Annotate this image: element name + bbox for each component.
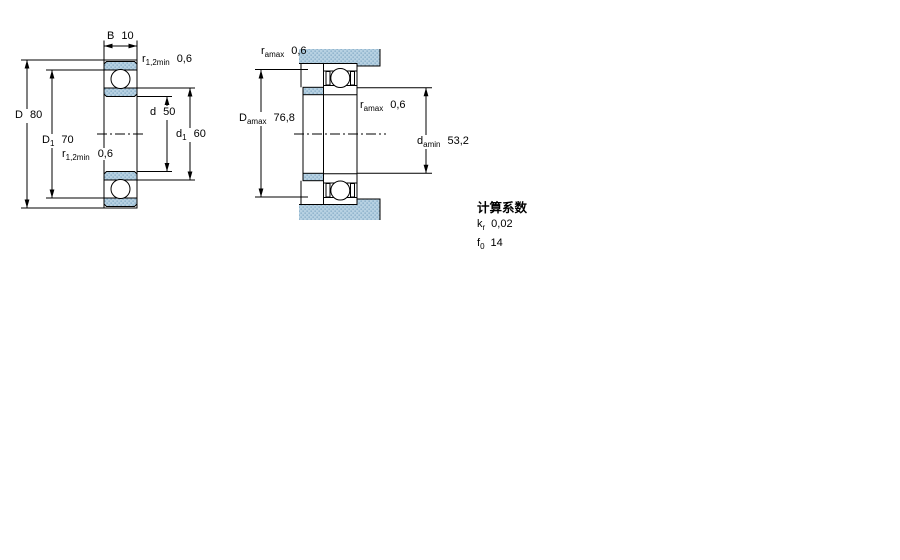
factor-kr: kr0,02 — [477, 218, 513, 232]
cage-pocket — [351, 72, 355, 86]
dim-label-ramax-top: ramax0,6 — [261, 45, 307, 59]
left-ball-top — [111, 70, 130, 89]
dim-label-D1: D170 — [41, 134, 75, 148]
dim-label-ramax-mid: ramax0,6 — [359, 99, 407, 113]
shaft-shoulder-bottom-section — [303, 173, 324, 180]
right-mounted-diagram — [255, 49, 432, 220]
left-inner-ring-bottom-section — [104, 172, 137, 181]
right-ball-bottom — [331, 181, 350, 200]
cage-pocket — [326, 72, 330, 86]
right-ball-top — [331, 69, 350, 88]
cage-pocket — [326, 184, 330, 198]
factor-f0: f014 — [477, 237, 503, 251]
dim-label-D: D80 — [14, 109, 43, 123]
dim-label-Damax: Damax76,8 — [238, 112, 296, 126]
dim-label-B: B10 — [107, 30, 134, 44]
dim-label-d1: d160 — [175, 128, 207, 142]
dim-label-d: d50 — [149, 106, 176, 120]
left-inner-ring-top-section — [104, 88, 137, 97]
left-ball-bottom — [111, 180, 130, 199]
bearing-drawing-page: B10 r1,2min0,6 D80 D170 r1,2min0,6 d50 d… — [0, 0, 900, 560]
shaft-shoulder-top-section — [303, 87, 324, 94]
left-outer-ring-bottom-section — [104, 198, 137, 207]
left-outer-ring-top-section — [104, 62, 137, 71]
calculation-factors-heading: 计算系数 — [477, 197, 527, 216]
bearing-drawing-linework — [0, 0, 900, 560]
cage-pocket — [351, 184, 355, 198]
dim-label-damin: damin53,2 — [416, 135, 470, 149]
dim-label-r12min-bottom: r1,2min0,6 — [62, 148, 114, 162]
dim-label-r12min-top: r1,2min0,6 — [142, 53, 192, 67]
